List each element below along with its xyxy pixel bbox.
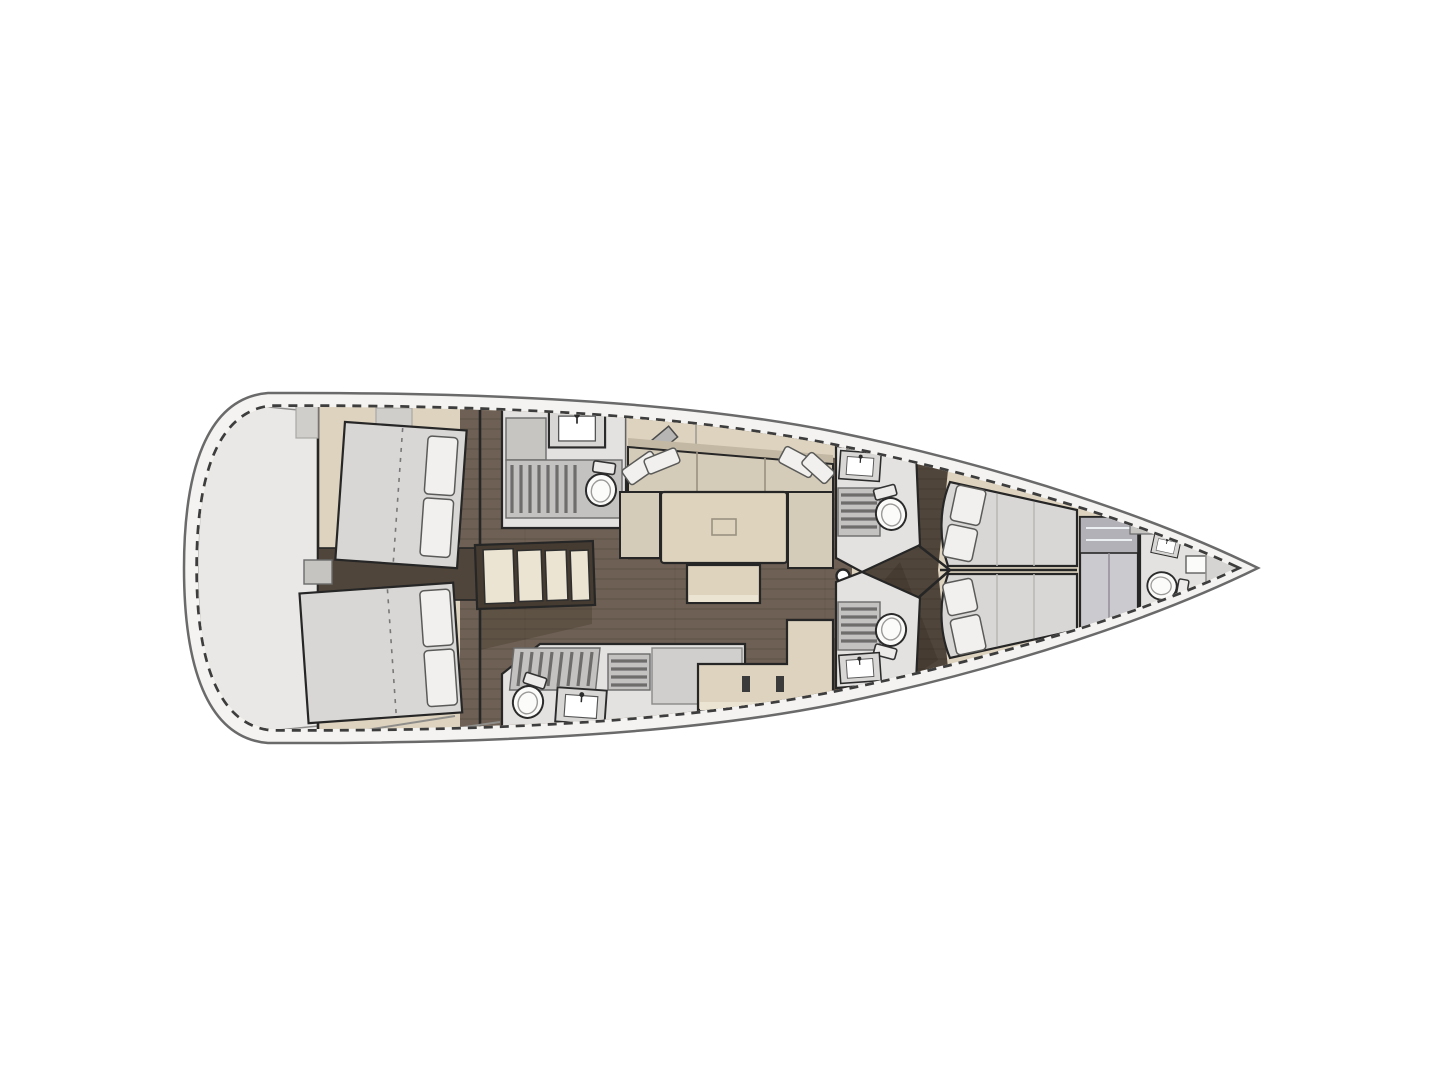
companionway-stairs (475, 541, 595, 609)
sofa-arm-right (788, 492, 833, 568)
stair-tread (483, 549, 515, 604)
stair-tread (545, 550, 568, 601)
locker-top (296, 402, 318, 438)
sink-icon (839, 653, 881, 684)
shower-grate-icon (838, 602, 880, 650)
pillow (942, 524, 978, 563)
shower-grate-icon (608, 654, 650, 690)
yacht-floor-plan (0, 0, 1440, 1080)
aft-cabin-starboard (300, 583, 463, 723)
salon-table (661, 492, 787, 563)
pillow (424, 649, 458, 707)
pillow (424, 436, 458, 496)
stair-tread (570, 550, 590, 601)
sofa-chaise-left (620, 492, 660, 558)
shower-grate-icon (838, 488, 880, 536)
pillow (950, 614, 987, 655)
pillow (950, 485, 987, 526)
pillow (420, 589, 454, 647)
bench-edge (689, 595, 758, 602)
vanity-cabinet (506, 418, 546, 460)
pillow (420, 498, 454, 558)
shower-grate-icon (510, 648, 600, 690)
pillow (942, 578, 978, 617)
stair-tread (517, 550, 543, 602)
sink-icon (555, 687, 607, 725)
locker (1130, 624, 1160, 644)
counter-slot (742, 676, 750, 692)
floor-plan-canvas (0, 0, 1440, 1080)
shelf (1186, 556, 1206, 573)
divider-locker (304, 560, 332, 584)
aft-cabin-port (335, 422, 466, 568)
counter-slot (776, 676, 784, 692)
sink-icon (839, 451, 881, 482)
